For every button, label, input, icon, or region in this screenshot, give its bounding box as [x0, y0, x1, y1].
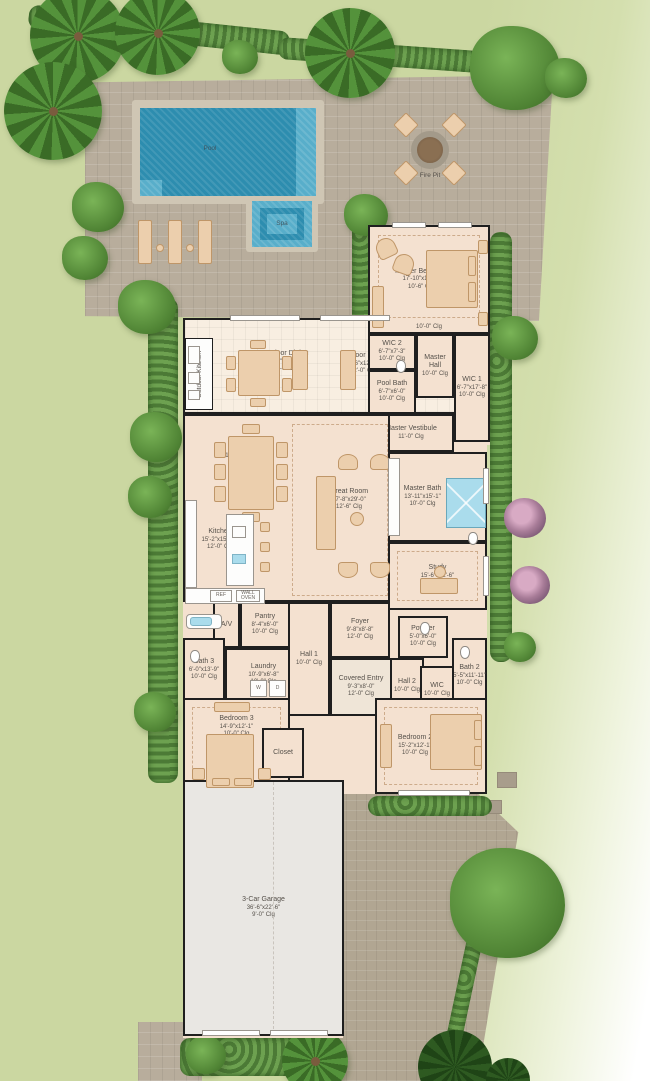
room-clg: 10'-0" Clg — [453, 680, 486, 688]
palm-icon — [115, 0, 200, 75]
hedge — [490, 232, 512, 662]
toilet — [460, 646, 470, 659]
room-clg: 10'-0" Clg — [457, 392, 487, 400]
desk-chair — [434, 566, 446, 578]
outdoor-dining-table — [238, 350, 280, 396]
tree-icon — [130, 412, 182, 462]
dresser — [214, 702, 250, 712]
shrub-icon — [492, 316, 538, 360]
window — [230, 315, 300, 321]
bathtub-basin — [190, 617, 212, 626]
dining-chair — [276, 464, 288, 480]
room-pantry: Pantry 8'-4"x6'-0" 10'-0" Clg — [240, 602, 290, 648]
nightstand — [258, 768, 271, 780]
dining-chair — [214, 442, 226, 458]
pillow — [212, 778, 230, 786]
toilet — [420, 622, 430, 635]
shrub-icon — [545, 58, 587, 98]
armchair — [338, 454, 358, 470]
room-clg: 10'-0" Clg — [189, 674, 219, 682]
outdoor-chair — [282, 356, 292, 370]
room-tray-clg: 10'-0" Clg — [370, 324, 488, 330]
dining-chair — [242, 424, 260, 434]
room-foyer: Foyer 9'-8"x8'-8" 12'-0" Clg — [330, 602, 390, 658]
palm-icon — [4, 62, 102, 160]
nightstand — [478, 240, 488, 254]
pillow — [234, 778, 252, 786]
pool-sun-shelf — [296, 108, 316, 196]
kitchen-island — [226, 514, 254, 586]
grill — [188, 346, 200, 364]
outdoor-chair — [282, 378, 292, 392]
room-dims: 14'-9"x12'-1" — [219, 724, 253, 732]
room-dims: 6'-7"x17'-8" — [457, 385, 487, 393]
dryer: D — [269, 680, 286, 697]
room-name: Pool Bath — [377, 380, 407, 389]
side-table — [186, 244, 194, 252]
room-name: WIC — [424, 682, 450, 691]
shower — [446, 478, 486, 528]
bar-stool — [260, 542, 270, 552]
garage-door — [270, 1030, 328, 1036]
room-dims: 5'-5"x11'-11" — [453, 673, 486, 681]
room-dims: 6'-7"x7'-3" — [379, 349, 406, 357]
kitchen-counter — [185, 500, 197, 588]
room-clg: 10'-0" Clg — [252, 629, 279, 637]
outdoor-sofa — [292, 350, 308, 390]
room-name: Covered Entry — [339, 675, 384, 684]
room-name: Master Bath — [404, 485, 442, 494]
refrigerator: REF — [210, 590, 232, 602]
dining-chair — [214, 464, 226, 480]
room-name: Master Hall — [418, 354, 452, 372]
pillow — [468, 282, 476, 302]
room-name: Hall 2 — [394, 678, 420, 687]
outdoor-chair — [226, 378, 236, 392]
shrub-icon — [118, 280, 176, 334]
room-name: WIC 2 — [379, 340, 406, 349]
room-name: Hall 1 — [296, 651, 322, 660]
wall-oven: WALL OVEN — [236, 590, 260, 602]
study-desk — [420, 578, 458, 594]
room-clg: 10'-0" Clg — [404, 501, 442, 509]
hedge — [368, 796, 492, 816]
room-dims: 9'-8"x8'-8" — [347, 627, 374, 635]
coffee-table — [350, 512, 364, 526]
room-clg: 10'-0" Clg — [418, 371, 452, 379]
room-wic2: WIC 2 6'-7"x7'-3" 10'-0" Clg — [368, 334, 416, 370]
room-name: Pantry — [252, 613, 279, 622]
vanity — [388, 458, 400, 536]
lounge-chair — [138, 220, 152, 264]
pillow — [474, 746, 482, 766]
fire-pit-label: Fire Pit — [405, 172, 455, 179]
palm-icon — [486, 1058, 530, 1081]
flowering-shrub-icon — [510, 566, 550, 604]
sofa — [316, 476, 336, 550]
room-dims: 5'-0"x6'-0" — [410, 634, 437, 642]
outdoor-chair — [226, 356, 236, 370]
room-name: Master Vestibule — [385, 425, 437, 434]
room-name: A/V — [221, 621, 232, 630]
fire-pit — [411, 131, 449, 169]
window — [483, 468, 489, 504]
nightstand — [192, 768, 205, 780]
room-clg: 10'-0" Clg — [398, 750, 432, 758]
spa-label: Spa — [257, 220, 307, 227]
garage-bay-line — [273, 782, 274, 1034]
pool-step — [140, 180, 162, 196]
cooktop — [232, 526, 246, 538]
outdoor-fridge — [188, 390, 200, 400]
room-clg: 10'-0" Clg — [410, 641, 437, 649]
garage-door — [202, 1030, 260, 1036]
pillow — [474, 720, 482, 740]
window — [320, 315, 390, 321]
dining-table — [228, 436, 274, 510]
room-hall1: Hall 1 10'-0" Clg — [288, 602, 330, 716]
window — [398, 790, 470, 796]
room-name: 3-Car Garage — [242, 896, 285, 905]
room-clg: 11'-0" Clg — [385, 434, 437, 442]
tree-icon — [134, 692, 176, 732]
room-name: Bedroom 2 — [398, 734, 432, 743]
shrub-icon — [186, 1036, 226, 1074]
outdoor-sofa — [340, 350, 356, 390]
site-plan: Pool Spa Fire Pit Outdoor Dining 13'-6"x… — [0, 0, 650, 1081]
room-name: Bath 2 — [453, 664, 486, 673]
window — [392, 222, 426, 228]
room-bath3: Bath 3 6'-0"x13'-9" 10'-0" Clg — [183, 638, 225, 702]
stepping-stone — [497, 772, 517, 788]
room-name: WIC 1 — [457, 376, 487, 385]
lounge-chair — [168, 220, 182, 264]
side-table — [156, 244, 164, 252]
room-dims: 9'-3"x8'-0" — [339, 684, 384, 692]
dining-chair — [276, 442, 288, 458]
bar-stool — [260, 522, 270, 532]
armchair — [370, 454, 390, 470]
pool — [140, 108, 316, 196]
room-name: Bedroom 3 — [219, 715, 253, 724]
window — [438, 222, 472, 228]
room-dims: 15'-2"x12'-1" — [398, 743, 432, 751]
outdoor-sink — [188, 372, 200, 384]
tree-icon — [450, 848, 565, 958]
nightstand — [478, 312, 488, 326]
shrub-icon — [72, 182, 124, 232]
room-name: Foyer — [347, 618, 374, 627]
room-clg: 10'-0" Clg — [394, 687, 420, 695]
room-clg: 9'-0" Clg — [242, 912, 285, 920]
toilet — [468, 532, 478, 545]
window — [483, 556, 489, 596]
room-clg: 10'-0" Clg — [296, 660, 322, 668]
dining-chair — [214, 486, 226, 502]
room-dims: 13'-11"x15'-1" — [404, 494, 442, 502]
outdoor-chair — [250, 398, 266, 407]
outdoor-chair — [250, 340, 266, 349]
washer: W — [250, 680, 267, 697]
room-clg: 10'-0" Clg — [424, 691, 450, 699]
room-dims: 36'-6"x22'-6" — [242, 905, 285, 913]
toilet — [190, 650, 200, 663]
room-dims: 8'-4"x6'-0" — [252, 622, 279, 630]
room-pool-bath: Pool Bath 6'-7"x6'-0" 10'-0" Clg — [368, 370, 416, 414]
room-dims: 6'-0"x13'-9" — [189, 667, 219, 675]
toilet — [396, 360, 406, 373]
shrub-icon — [62, 236, 108, 280]
room-clg: 12'-0" Clg — [347, 634, 374, 642]
dresser — [380, 724, 392, 768]
lounge-chair — [198, 220, 212, 264]
room-name: Closet — [273, 749, 293, 758]
palm-icon — [305, 8, 395, 98]
room-dims: 6'-7"x6'-0" — [377, 389, 407, 397]
pool-label: Pool — [185, 145, 235, 152]
room-dims: 10'-9"x6'-8" — [248, 672, 278, 680]
flowering-shrub-icon — [504, 498, 546, 538]
dresser — [372, 286, 384, 328]
room-master-hall: Master Hall 10'-0" Clg — [416, 334, 454, 398]
tree-icon — [128, 476, 172, 518]
shrub-icon — [504, 632, 536, 662]
dining-chair — [276, 486, 288, 502]
armchair — [338, 562, 358, 578]
room-clg: 10'-0" Clg — [377, 396, 407, 404]
bar-stool — [260, 562, 270, 572]
pillow — [468, 256, 476, 276]
sink — [232, 554, 246, 564]
room-garage: 3-Car Garage 36'-6"x22'-6" 9'-0" Clg — [183, 780, 344, 1036]
shrub-icon — [222, 40, 258, 74]
room-name: Laundry — [248, 663, 278, 672]
armchair — [370, 562, 390, 578]
room-wic1: WIC 1 6'-7"x17'-8" 10'-0" Clg — [454, 334, 490, 442]
